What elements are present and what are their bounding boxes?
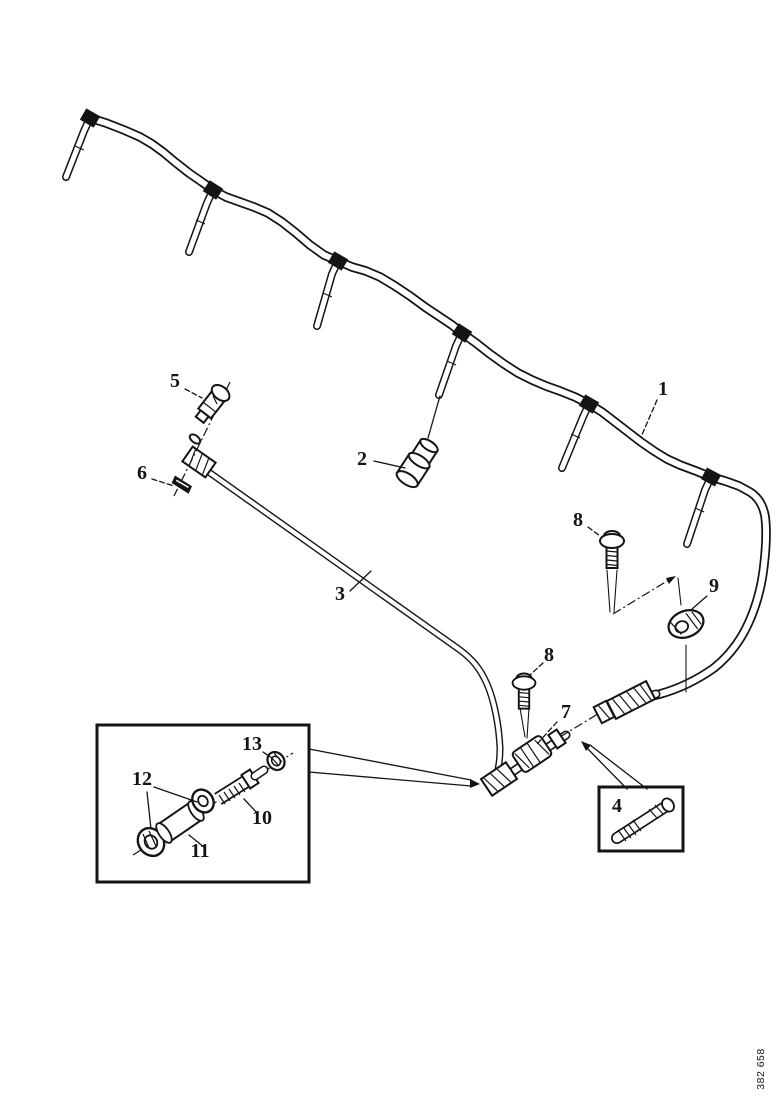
callout-13: 13 (242, 733, 262, 755)
connector-part-2 (394, 396, 441, 490)
callout-11: 11 (191, 840, 210, 862)
parts-diagram-page: 1 2 3 4 5 6 7 8 8 9 10 11 12 13 382 658 (0, 0, 778, 1100)
return-pipe-assembly (481, 681, 656, 796)
fuel-rail-pipe (90, 118, 766, 697)
callout-4: 4 (612, 795, 622, 817)
callout-9: 9 (709, 575, 719, 597)
callout-6: 6 (137, 462, 147, 484)
inset-box-4 (581, 741, 683, 851)
bolt-part-8-mid (513, 674, 536, 739)
rail-branch-pipes (66, 108, 721, 544)
inset-box-10-13 (97, 725, 480, 882)
callout-3: 3 (335, 583, 345, 605)
callout-5: 5 (170, 370, 180, 392)
leak-off-pipe-part-3 (182, 447, 500, 783)
fitting-part-10 (218, 770, 264, 804)
callout-7: 7 (561, 701, 571, 723)
callout-2: 2 (357, 448, 367, 470)
coupling-nut (607, 681, 655, 719)
bolt-part-8-top (600, 531, 624, 612)
clip-part-6 (170, 474, 193, 495)
callout-10: 10 (252, 807, 272, 829)
washer (188, 433, 202, 446)
callout-8-mid: 8 (544, 644, 554, 666)
callout-12: 12 (132, 768, 152, 790)
callout-1: 1 (658, 378, 668, 400)
clamp-part-9 (613, 576, 708, 692)
parts-diagram-svg: 1 2 3 4 5 6 7 8 8 9 10 11 12 13 382 658 (0, 0, 778, 1100)
drawing-number: 382 658 (755, 1048, 767, 1089)
callout-8-top: 8 (573, 509, 583, 531)
